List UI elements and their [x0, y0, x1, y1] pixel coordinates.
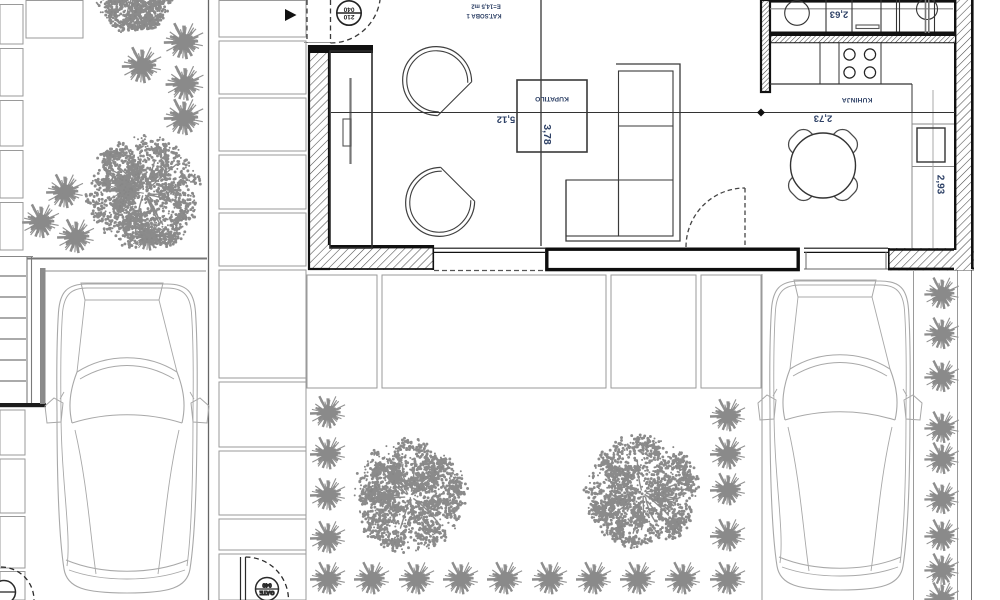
svg-text:3,78: 3,78 — [541, 124, 553, 145]
svg-text:2,73: 2,73 — [814, 113, 833, 124]
svg-text:2,93: 2,93 — [935, 175, 946, 195]
svg-text:KUHINJA: KUHINJA — [842, 96, 873, 103]
svg-text:2,63: 2,63 — [830, 9, 849, 20]
svg-text:KAT.SOBA 1: KAT.SOBA 1 — [466, 12, 502, 18]
svg-text:GATE: GATE — [259, 589, 274, 595]
svg-text:E=14,5 m2: E=14,5 m2 — [471, 3, 501, 9]
svg-text:KUPATILO: KUPATILO — [535, 95, 569, 102]
svg-text:040: 040 — [343, 5, 354, 12]
svg-text:210: 210 — [343, 13, 354, 20]
svg-text:5,12: 5,12 — [497, 114, 516, 125]
svg-text:040: 040 — [262, 582, 271, 588]
